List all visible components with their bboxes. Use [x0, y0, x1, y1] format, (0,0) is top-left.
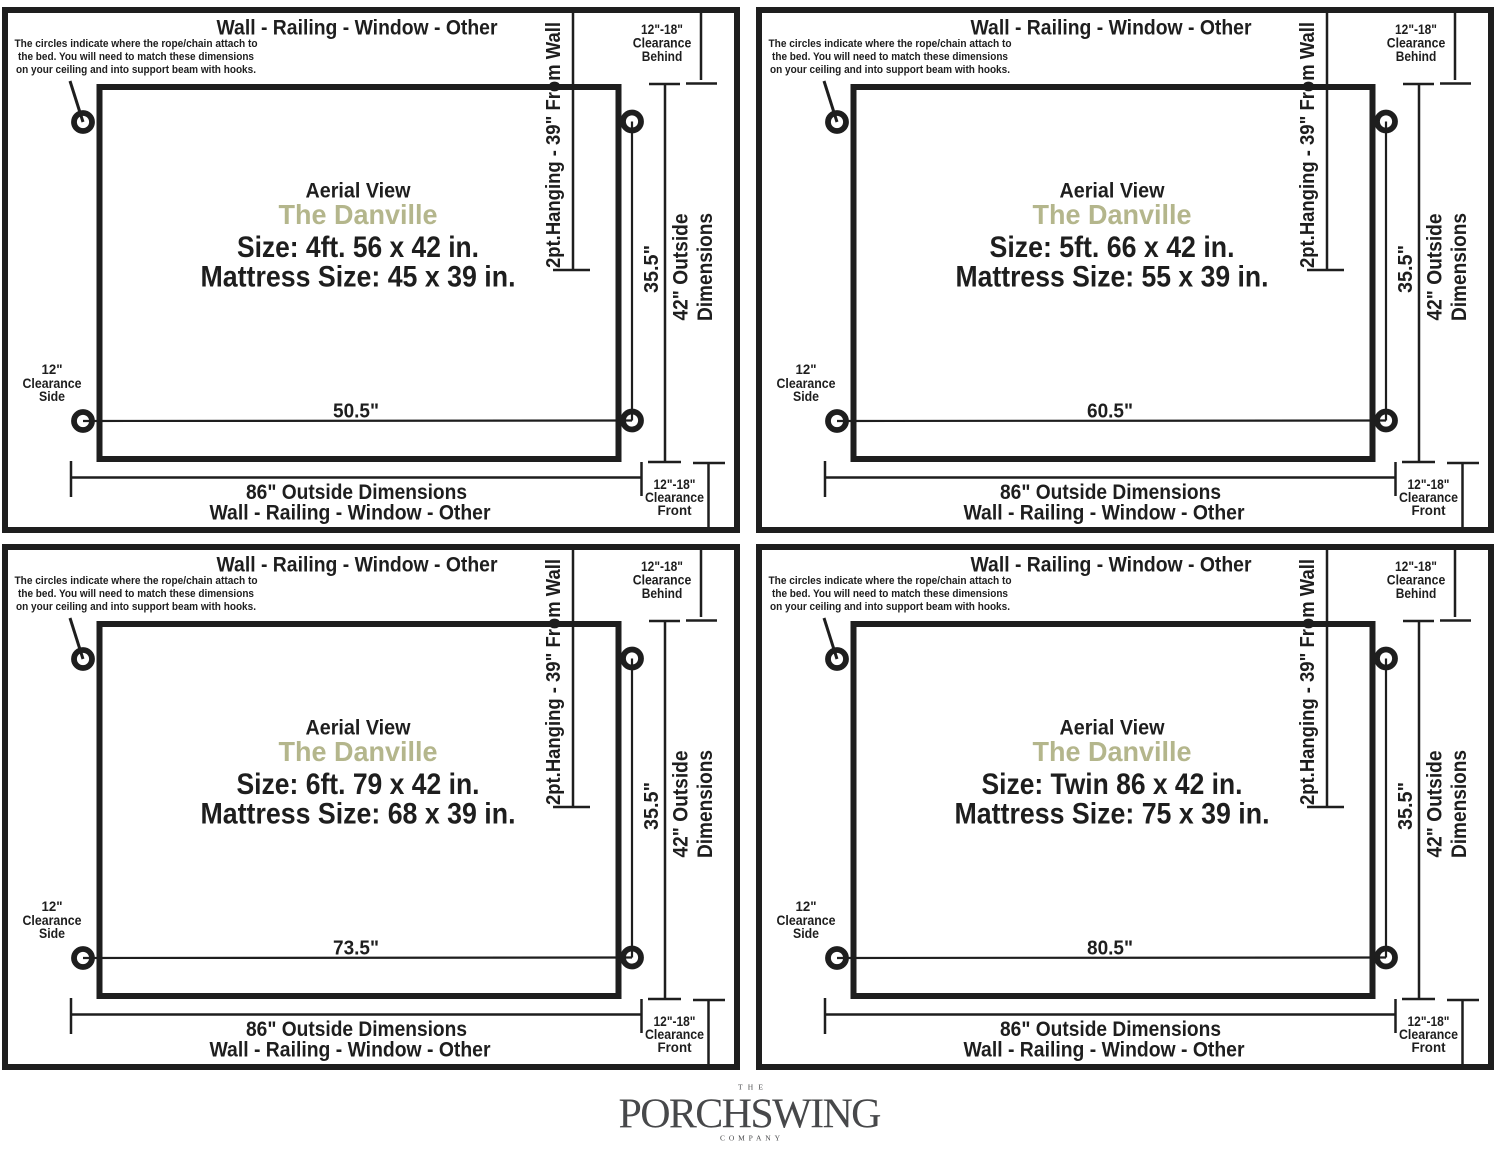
- svg-text:2pt.Hanging - 39" From Wall: 2pt.Hanging - 39" From Wall: [1297, 559, 1319, 805]
- svg-text:THE: THE: [738, 1083, 763, 1092]
- svg-text:35.5": 35.5": [641, 782, 663, 830]
- svg-text:2pt.Hanging - 39" From Wall: 2pt.Hanging - 39" From Wall: [543, 559, 565, 805]
- svg-text:Mattress Size: 45 x 39 in.: Mattress Size: 45 x 39 in.: [201, 261, 516, 294]
- svg-text:Behind: Behind: [642, 48, 683, 64]
- svg-text:on your ceiling and into suppo: on your ceiling and into support beam wi…: [16, 601, 256, 613]
- svg-text:the bed. You will need to matc: the bed. You will need to match these di…: [772, 51, 1008, 63]
- svg-text:Wall - Railing - Window - Othe: Wall - Railing - Window - Other: [964, 502, 1245, 525]
- svg-text:Wall - Railing - Window - Othe: Wall - Railing - Window - Other: [210, 502, 491, 525]
- svg-text:Front: Front: [658, 1039, 692, 1055]
- svg-text:42" Outside: 42" Outside: [670, 214, 693, 321]
- svg-text:35.5": 35.5": [1395, 245, 1417, 293]
- svg-text:2pt.Hanging - 39" From Wall: 2pt.Hanging - 39" From Wall: [1297, 22, 1319, 268]
- svg-text:the bed. You will need to matc: the bed. You will need to match these di…: [18, 51, 254, 63]
- svg-text:Size: Twin 86 x 42 in.: Size: Twin 86 x 42 in.: [982, 768, 1243, 801]
- svg-text:73.5": 73.5": [333, 938, 379, 960]
- svg-text:Wall - Railing - Window - Othe: Wall - Railing - Window - Other: [217, 554, 498, 577]
- svg-text:Size: 6ft. 79 x 42 in.: Size: 6ft. 79 x 42 in.: [237, 768, 480, 801]
- svg-text:Dimensions: Dimensions: [1448, 750, 1471, 858]
- svg-text:Side: Side: [39, 388, 65, 404]
- svg-text:the bed. You will need to matc: the bed. You will need to match these di…: [772, 588, 1008, 600]
- svg-text:2pt.Hanging - 39" From Wall: 2pt.Hanging - 39" From Wall: [543, 22, 565, 268]
- svg-text:Behind: Behind: [1396, 585, 1437, 601]
- svg-text:50.5": 50.5": [333, 401, 379, 423]
- svg-text:on your ceiling and into suppo: on your ceiling and into support beam wi…: [770, 601, 1010, 613]
- svg-text:Wall - Railing - Window - Othe: Wall - Railing - Window - Other: [971, 554, 1252, 577]
- svg-text:35.5": 35.5": [1395, 782, 1417, 830]
- svg-text:Side: Side: [39, 925, 65, 941]
- svg-text:Front: Front: [1412, 1039, 1446, 1055]
- svg-text:The circles indicate where the: The circles indicate where the rope/chai…: [769, 575, 1012, 587]
- svg-text:Wall - Railing - Window - Othe: Wall - Railing - Window - Other: [971, 17, 1252, 40]
- svg-text:The circles indicate where the: The circles indicate where the rope/chai…: [15, 575, 258, 587]
- svg-text:Size: 5ft. 66 x 42 in.: Size: 5ft. 66 x 42 in.: [990, 231, 1235, 264]
- svg-text:Wall - Railing - Window - Othe: Wall - Railing - Window - Other: [217, 17, 498, 40]
- svg-text:Behind: Behind: [1396, 48, 1437, 64]
- svg-text:Mattress Size: 75 x 39 in.: Mattress Size: 75 x 39 in.: [955, 798, 1270, 831]
- svg-text:The Danville: The Danville: [279, 736, 438, 767]
- svg-text:42" Outside: 42" Outside: [1424, 214, 1447, 321]
- svg-text:the bed. You will need to matc: the bed. You will need to match these di…: [18, 588, 254, 600]
- svg-text:Wall - Railing - Window - Othe: Wall - Railing - Window - Other: [210, 1039, 491, 1062]
- svg-text:Mattress Size: 68 x 39 in.: Mattress Size: 68 x 39 in.: [201, 798, 516, 831]
- svg-text:Front: Front: [658, 502, 692, 518]
- svg-text:42" Outside: 42" Outside: [1424, 751, 1447, 858]
- svg-text:The circles indicate where the: The circles indicate where the rope/chai…: [769, 38, 1012, 50]
- svg-text:Dimensions: Dimensions: [694, 213, 717, 321]
- svg-text:Mattress Size: 55 x 39 in.: Mattress Size: 55 x 39 in.: [956, 261, 1269, 294]
- svg-text:Side: Side: [793, 925, 819, 941]
- svg-text:The Danville: The Danville: [279, 199, 438, 230]
- svg-text:80.5": 80.5": [1087, 938, 1133, 960]
- svg-text:on your ceiling and into suppo: on your ceiling and into support beam wi…: [16, 64, 256, 76]
- svg-text:Side: Side: [793, 388, 819, 404]
- svg-text:Front: Front: [1412, 502, 1446, 518]
- svg-text:The Danville: The Danville: [1033, 736, 1192, 767]
- svg-text:on your ceiling and into suppo: on your ceiling and into support beam wi…: [770, 64, 1010, 76]
- svg-text:60.5": 60.5": [1087, 401, 1133, 423]
- svg-text:The circles indicate where the: The circles indicate where the rope/chai…: [15, 38, 258, 50]
- svg-text:Size: 4ft. 56 x 42 in.: Size: 4ft. 56 x 42 in.: [237, 231, 479, 264]
- svg-text:Behind: Behind: [642, 585, 683, 601]
- svg-text:PORCHSWING: PORCHSWING: [619, 1092, 882, 1138]
- svg-text:Wall - Railing - Window - Othe: Wall - Railing - Window - Other: [964, 1039, 1245, 1062]
- svg-text:42" Outside: 42" Outside: [670, 751, 693, 858]
- svg-text:The Danville: The Danville: [1033, 199, 1192, 230]
- svg-text:35.5": 35.5": [641, 245, 663, 293]
- svg-text:Dimensions: Dimensions: [694, 750, 717, 858]
- svg-text:Dimensions: Dimensions: [1448, 213, 1471, 321]
